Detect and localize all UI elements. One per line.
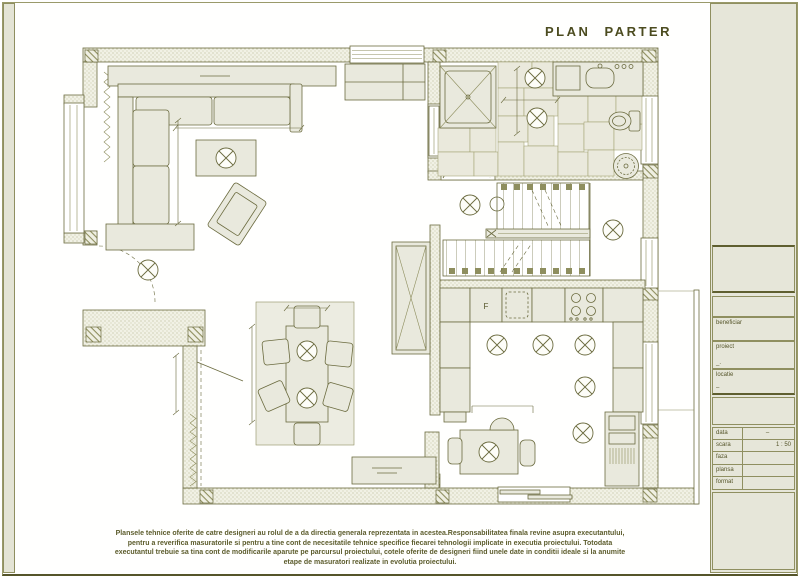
sliding-door-bottom	[498, 487, 572, 502]
fridge-label: F	[484, 302, 489, 311]
wardrobe	[345, 64, 425, 100]
ceiling-light-icon	[138, 260, 158, 280]
field-proiect: proiect _.	[712, 341, 795, 369]
row-scara: scara 1 : 50	[712, 440, 795, 453]
field-locatie: locatie –	[712, 369, 795, 395]
tv-cabinet	[108, 66, 336, 86]
row-value: –	[744, 430, 791, 436]
window-top	[350, 46, 424, 63]
tall-cabinet	[605, 412, 639, 486]
stairs-lower-flight	[443, 240, 590, 276]
row-value: 1 : 50	[744, 442, 791, 448]
disclaimer-text: Plansele tehnice oferite de catre design…	[48, 529, 692, 567]
row-label: format	[713, 477, 743, 489]
stairs-upper-flight	[497, 183, 589, 231]
table-lamp-icon	[216, 148, 236, 168]
ceiling-light-icon	[573, 423, 593, 443]
pendant-light-icon	[479, 442, 499, 462]
floor-plan: F	[0, 0, 800, 578]
windows-right	[641, 96, 658, 424]
ceiling-light-icon	[603, 220, 623, 240]
row-faza: faza	[712, 452, 795, 465]
title-block-empty-box	[712, 296, 795, 317]
row-data: data –	[712, 427, 795, 440]
field-label: proiect	[716, 344, 734, 350]
disclaimer-line: etape de masuratori realizate in evoluti…	[48, 558, 692, 568]
drawing-sheet: F	[0, 0, 800, 578]
field-value: –	[716, 385, 719, 391]
row-label: data	[713, 428, 743, 439]
stairs-landing-rail	[486, 229, 590, 238]
field-label: locatie	[716, 372, 733, 378]
disclaimer-line: Plansele tehnice oferite de catre design…	[48, 529, 692, 539]
ceiling-light-icon	[527, 108, 547, 128]
row-label: plansa	[713, 465, 743, 477]
ceiling-light-icon	[575, 377, 595, 397]
ceiling-light-icon	[460, 195, 480, 215]
ceiling-light-icon	[533, 335, 553, 355]
row-label: faza	[713, 452, 743, 464]
pendant-light-icon	[297, 388, 317, 408]
row-label: scara	[713, 440, 743, 452]
ceiling-light-icon	[487, 335, 507, 355]
armchair	[207, 182, 267, 246]
row-format: format	[712, 477, 795, 490]
dining-area	[256, 242, 430, 445]
ottoman	[106, 224, 194, 250]
bookcase	[392, 242, 430, 354]
field-label: beneficiar	[716, 320, 742, 326]
disclaimer-line: executantul trebuie sa tina cont de modi…	[48, 548, 692, 558]
kitchen-counter-right-column	[613, 322, 643, 412]
kitchen-counter-top-row: F	[440, 288, 643, 322]
title-block-bottom-box	[712, 492, 795, 570]
field-beneficiar: beneficiar	[712, 317, 795, 341]
stove	[565, 288, 603, 322]
pendant-light-icon	[297, 341, 317, 361]
living-room	[106, 64, 425, 250]
chair-left	[448, 438, 462, 464]
washing-machine	[614, 154, 639, 179]
toilet	[609, 111, 640, 131]
shower	[440, 66, 496, 128]
chair-top	[490, 418, 514, 430]
vanity-counter	[553, 62, 643, 96]
page-title: PLAN PARTER	[545, 24, 672, 39]
kitchen-counter-left-column	[440, 322, 470, 422]
chair-right	[520, 440, 535, 466]
field-value: _.	[716, 360, 721, 366]
disclaimer-line: pentru a reverifica masuratorile si pent…	[48, 539, 692, 549]
sideboard	[352, 457, 436, 484]
title-block-logo-box	[712, 245, 795, 293]
lower-left-door	[197, 350, 243, 486]
title-block-panel: beneficiar proiect _. locatie – data – s…	[710, 3, 797, 573]
ceiling-light-icon	[575, 335, 595, 355]
title-block-empty-box	[712, 397, 795, 425]
row-plansa: plansa	[712, 465, 795, 478]
window-left-bay	[64, 95, 84, 243]
ceiling-light-icon	[525, 68, 545, 88]
